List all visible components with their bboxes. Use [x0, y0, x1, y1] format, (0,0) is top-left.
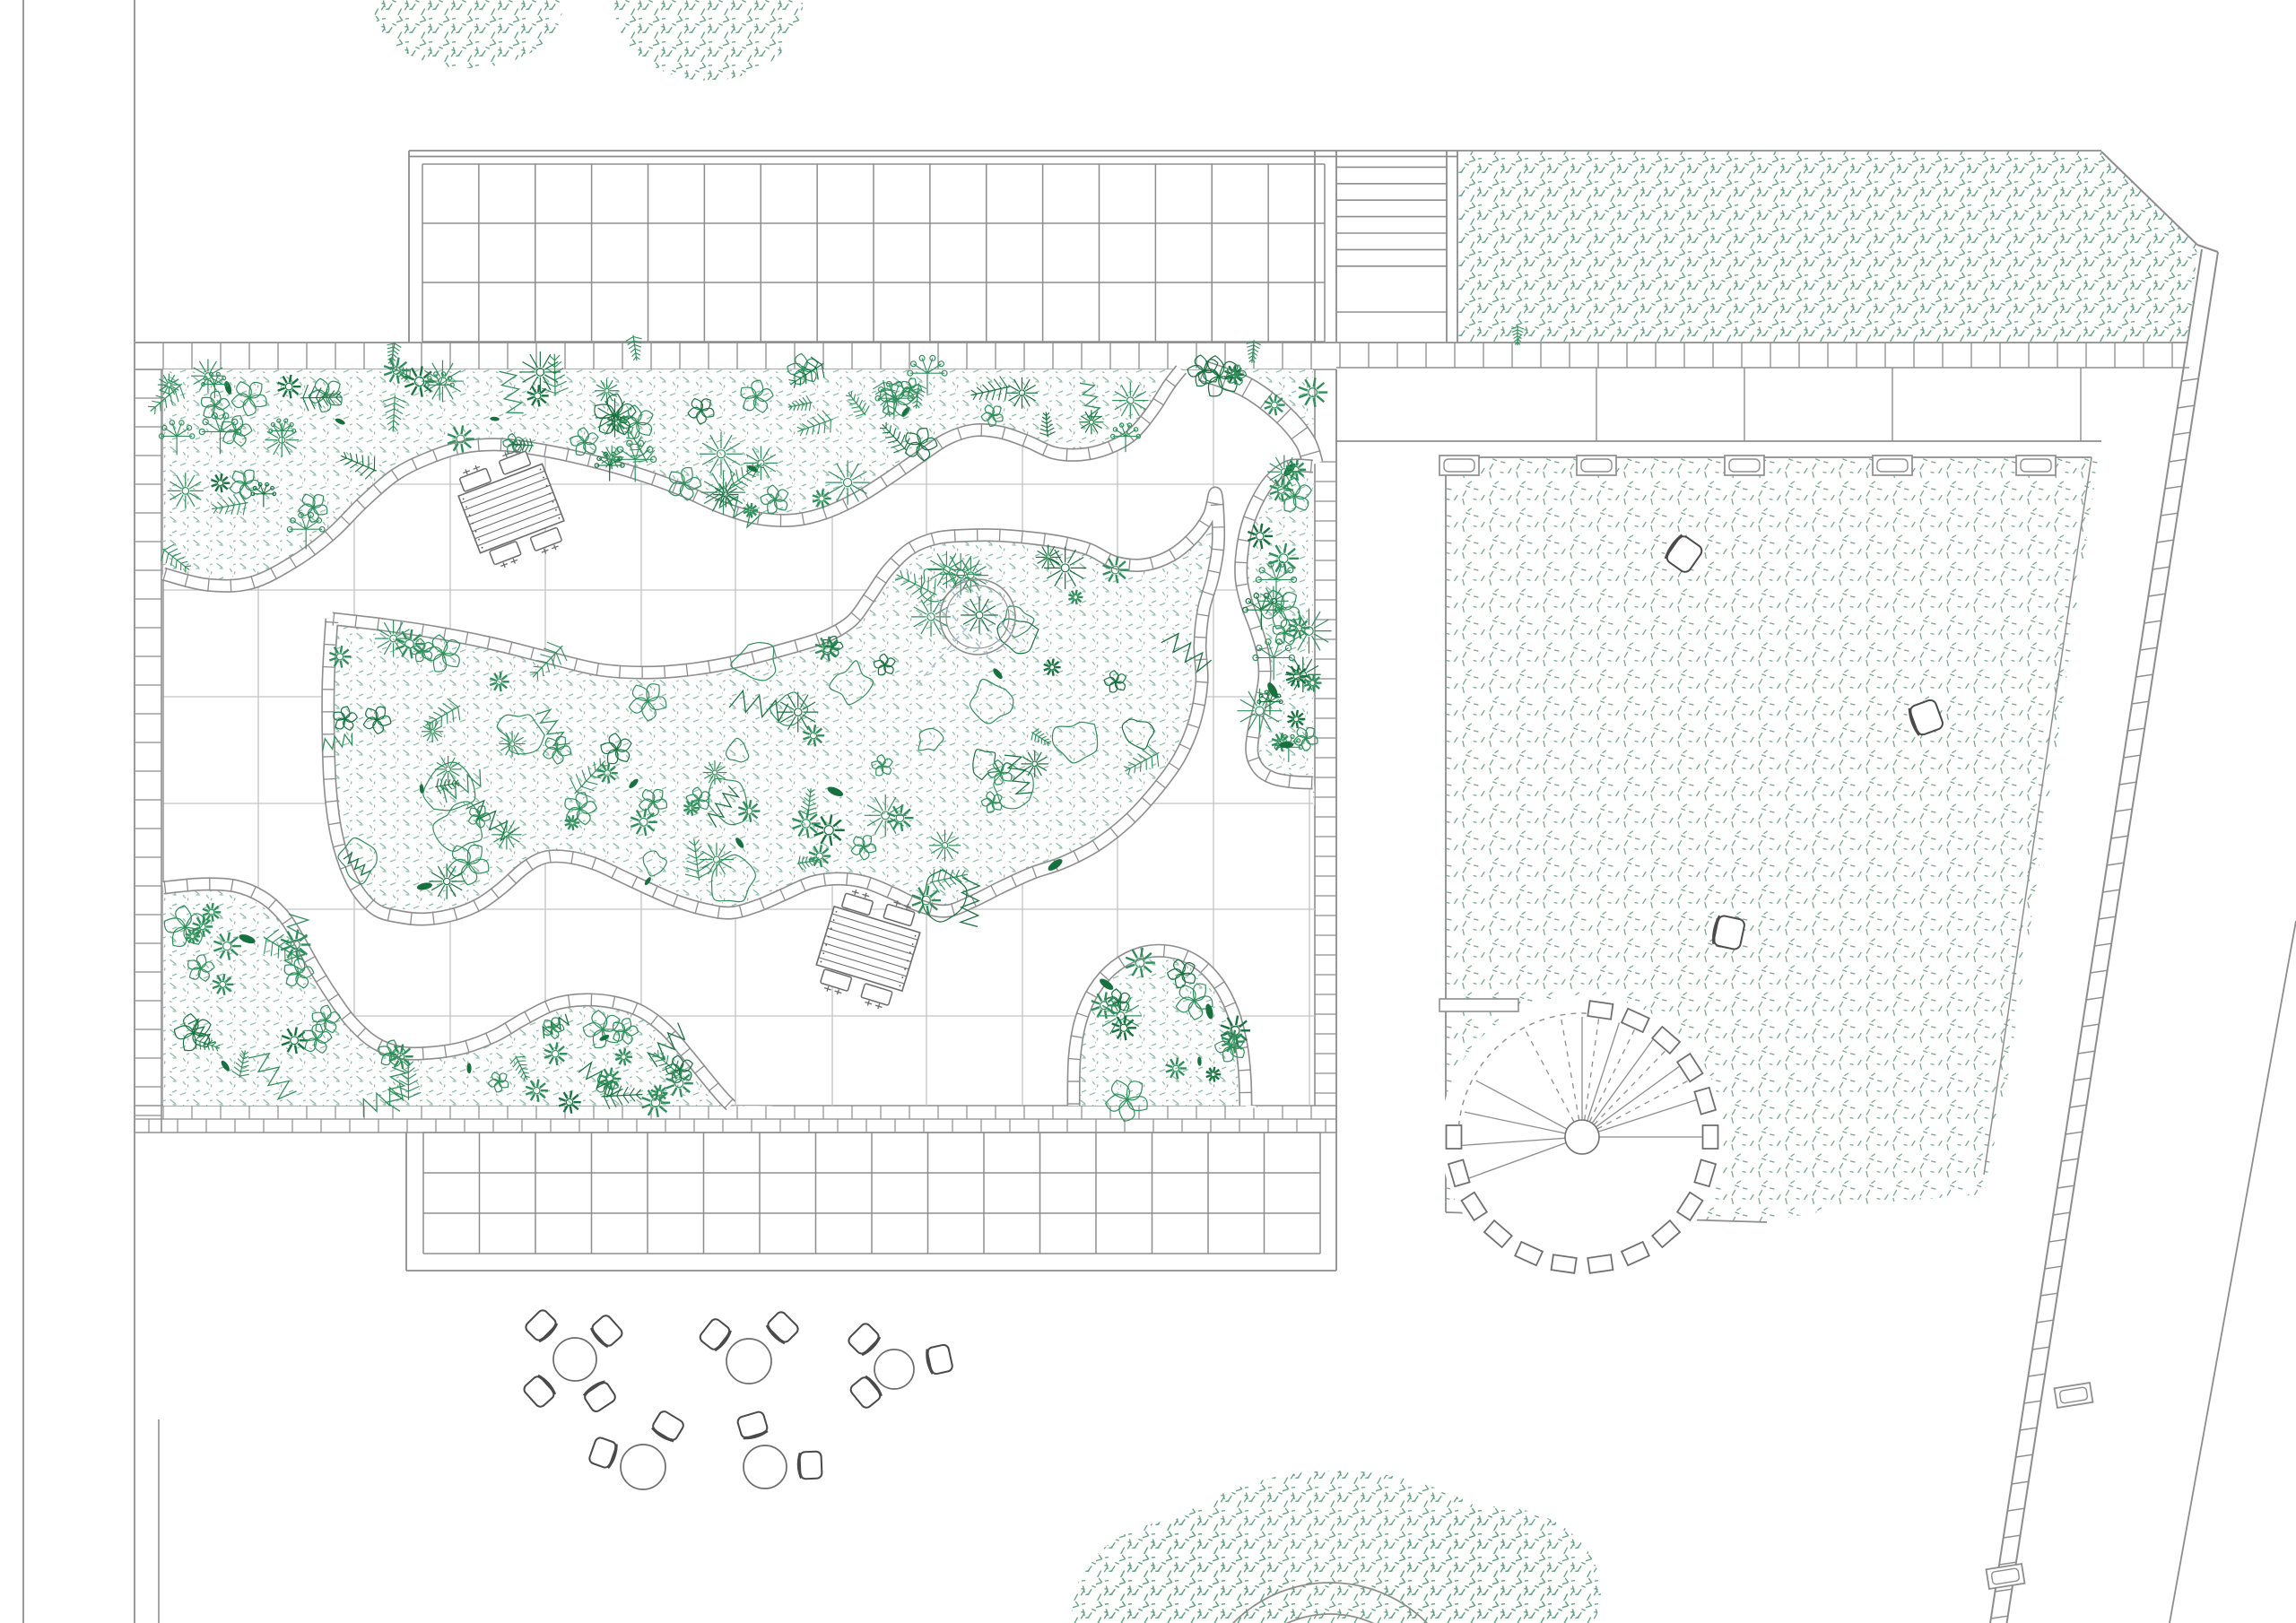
cafe-chair [650, 1410, 685, 1444]
cafe-chair [764, 1310, 800, 1346]
straight-staircase [1336, 151, 1457, 343]
spiral-staircase [1439, 995, 1724, 1279]
lawn-bench [1439, 456, 1479, 475]
cafe-chair [736, 1410, 769, 1441]
bottom-paving-grid [406, 1133, 1336, 1271]
hedge-area-top-right [1457, 152, 2197, 343]
site-boundary-lines [23, 0, 159, 1623]
lawn-chair [1711, 915, 1745, 950]
cafe-table [553, 1338, 596, 1381]
cafe-chair [588, 1314, 624, 1350]
cafe-table [874, 1350, 914, 1389]
lawn-bench [2016, 456, 2056, 475]
lawn-bench [1577, 456, 1616, 475]
cafe-chair [524, 1308, 560, 1344]
cafe-table [726, 1339, 771, 1384]
cafe-table [744, 1445, 787, 1488]
planted-courtyard [142, 325, 1524, 1128]
cafe-chair [847, 1322, 883, 1358]
cafe-chair [698, 1317, 733, 1353]
site-plan-canvas [0, 0, 2296, 1623]
cafe-chair [797, 1452, 822, 1480]
site-plan-drawing [0, 0, 2296, 1623]
lawn-bench [1873, 456, 1912, 475]
cafe-chair [581, 1379, 617, 1414]
picnic-table [449, 441, 572, 576]
cafe-chair [925, 1344, 953, 1376]
lawn-bench [1725, 456, 1764, 475]
cafe-chair [588, 1436, 620, 1470]
cafe-tables-and-chairs [522, 1308, 953, 1489]
cafe-table [621, 1445, 665, 1489]
cafe-chair [522, 1373, 558, 1409]
